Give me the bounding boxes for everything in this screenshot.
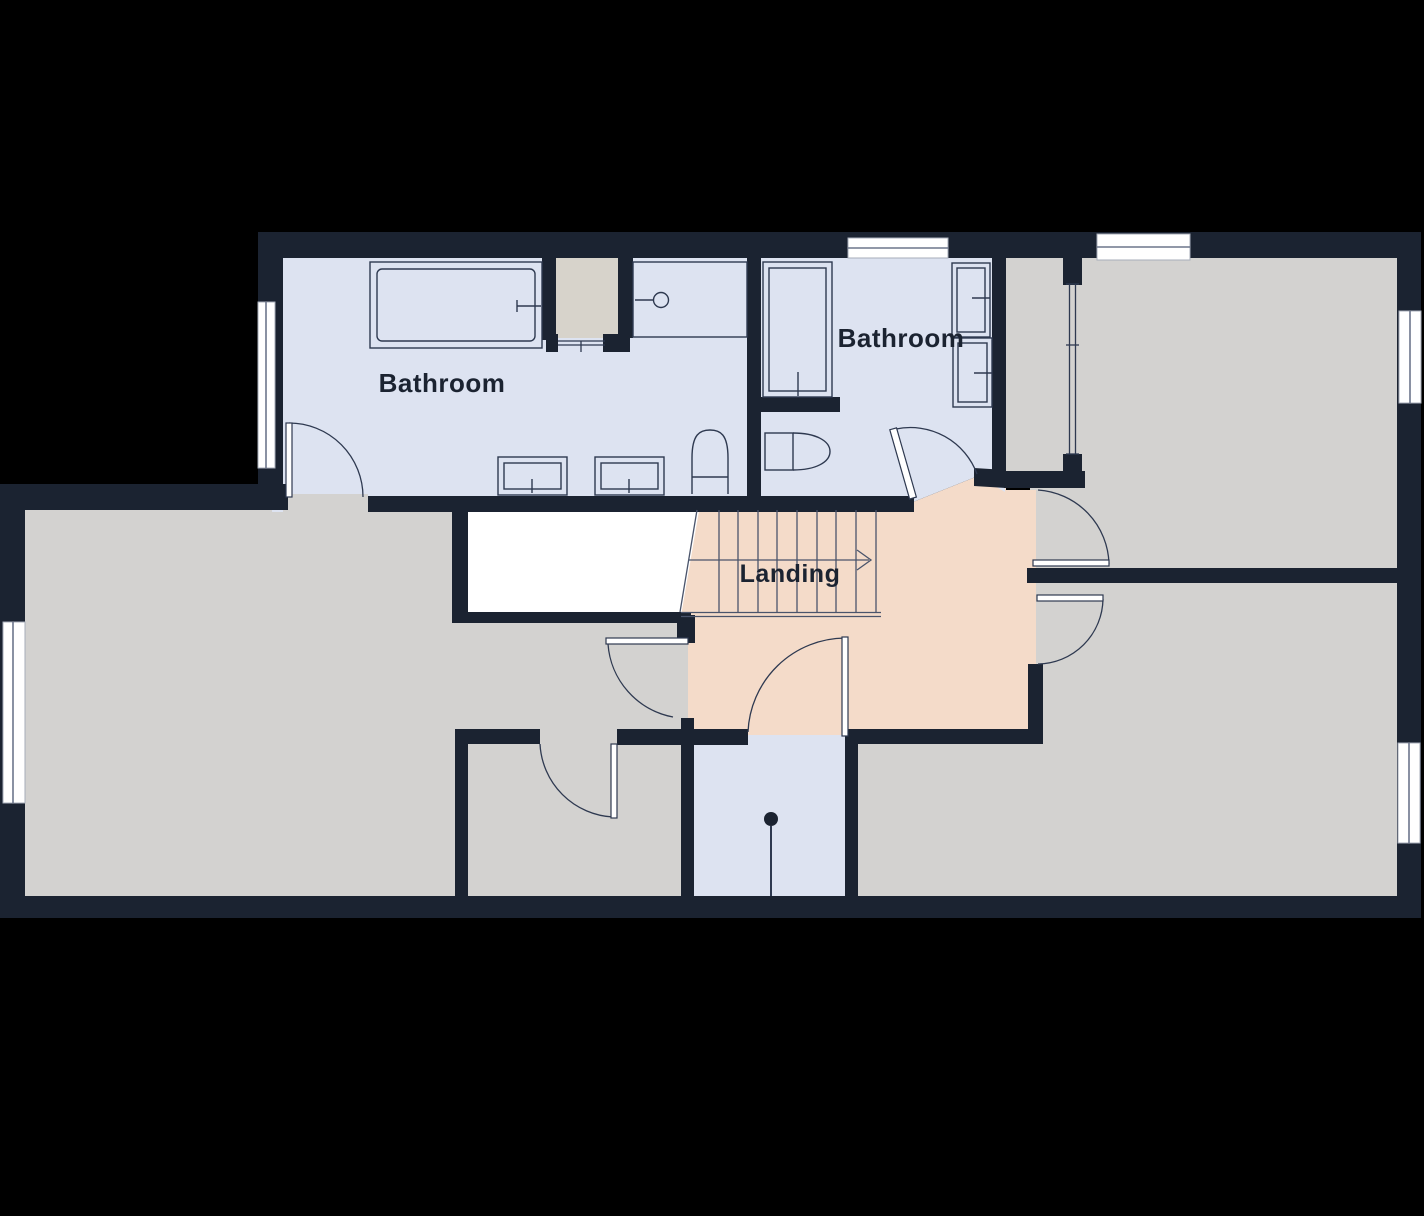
wall-right-rooms-divider [1027,568,1398,583]
bathroom-left-label: Bathroom [379,368,506,398]
wall-leftroom-top [0,484,288,510]
wall-sliding-stub-bottom [1063,454,1082,488]
doorway-bathroom-left [283,494,368,518]
bathroom-right-label: Bathroom [838,323,965,353]
bathroom-alcove-floor [556,258,618,338]
wall-alcove-east [618,258,633,338]
window-left-bedroom [3,622,25,803]
landing-label: Landing [740,560,841,588]
landing-floor [679,476,1036,742]
window-bathroom-left [258,302,275,468]
wall-below-cabinet [760,397,840,412]
wall-alcove-stub-left [546,334,558,352]
wall-alcove-west [542,258,556,340]
wall-top [258,232,1421,258]
room-bathroom-right-floor [747,250,1005,512]
wall-bathroom-right-east [992,258,1006,473]
stairwell-void [452,505,700,616]
room-top-right-floor [1030,258,1398,583]
doorway-middle-room [540,726,617,744]
wall-landing-south-east [845,729,1043,744]
wall-landing-south-west [617,729,748,745]
wall-bluecenter-east [845,729,858,898]
wall-stairwell-west [452,505,468,623]
floor-plan-canvas: Bathroom Bathroom Landing [0,0,1424,1216]
wall-alcove-stub-right [603,334,630,352]
room-left-bedroom-strip-floor [455,614,689,744]
wall-middle-room-west [455,729,468,898]
wall-stairwell-south [452,612,691,623]
wall-bathroom-divider [747,258,761,502]
window-right-upper [1399,311,1421,403]
room-middle-bottom-floor [462,738,690,898]
wall-bottom [0,896,1421,918]
wall-sliding-stub-top [1063,258,1082,285]
room-bathroom-left-floor [272,250,760,512]
window-top-bathroom-right [848,238,948,258]
wall-bathroom-south [368,496,914,512]
room-left-bedroom-floor [18,498,460,898]
closet-strip-floor [1005,258,1085,487]
window-top-right-room [1097,234,1190,260]
window-right-lower [1398,743,1420,843]
floor-plan: Bathroom Bathroom Landing [0,0,1424,1216]
